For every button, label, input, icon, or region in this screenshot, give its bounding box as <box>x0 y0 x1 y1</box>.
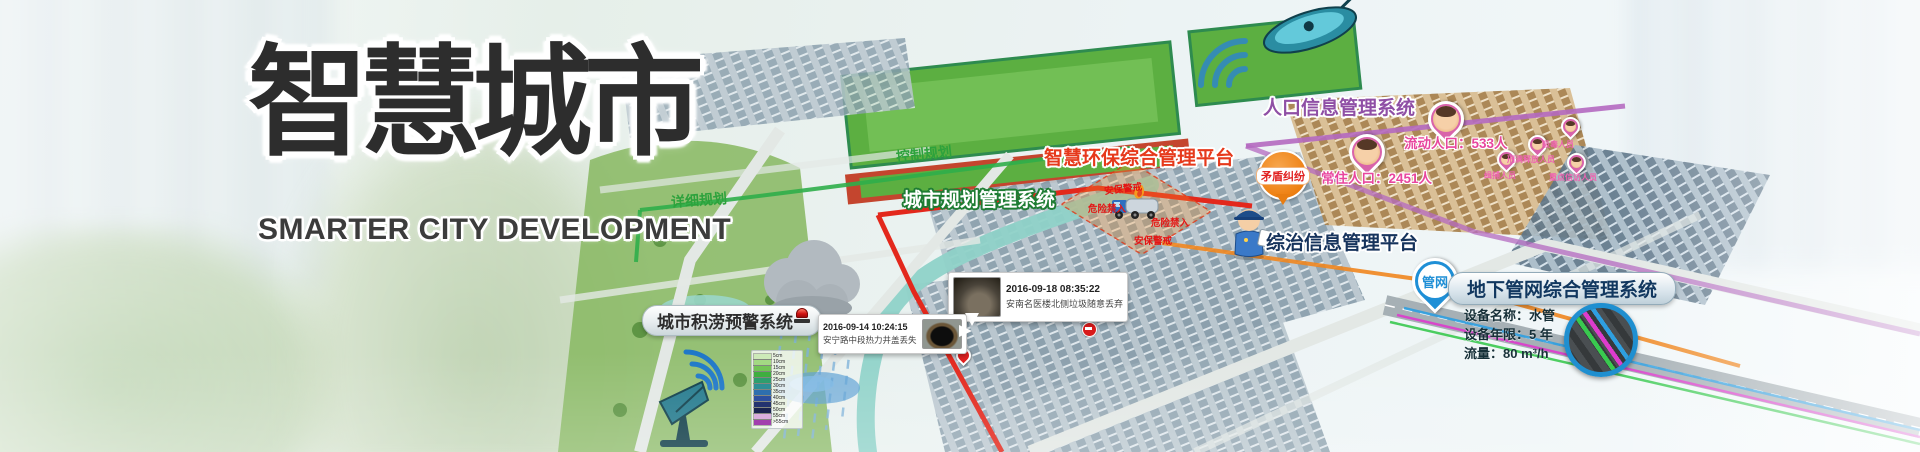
pipeline-magnifier <box>1564 303 1638 377</box>
legend-swatch <box>754 396 771 401</box>
alarm-siren-icon <box>794 308 810 323</box>
hazard-cordon-bottom-label: 安保警戒 <box>1134 233 1172 247</box>
legend-swatch <box>754 372 771 377</box>
pipeline-equipment-name: 设备名称：水管 <box>1464 305 1555 324</box>
legend-swatch <box>754 408 771 413</box>
label-population-system[interactable]: 人口信息管理系统 <box>1263 93 1415 120</box>
legend-swatch <box>754 378 771 383</box>
special-group-label: 吸毒人员 <box>1542 139 1574 150</box>
legend-swatch <box>754 366 771 371</box>
floating-population-count: 流动人口：533人 <box>1404 132 1508 152</box>
legend-row: >55cm <box>754 420 800 425</box>
label-environment-platform[interactable]: 智慧环保综合管理平台 <box>1044 143 1234 170</box>
smart-city-banner: 智慧城市 SMARTER CITY DEVELOPMENT 详细规划 控制规划 … <box>0 0 1920 452</box>
flood-depth-legend: 5cm 10cm 15cm 20cm 25cm 30cm 35cm 40cm 4… <box>751 350 803 429</box>
no-entry-sign-icon <box>1082 322 1097 337</box>
incident-desc: 安南名医楼北侧垃圾随意丢弃 <box>1006 297 1123 310</box>
label-governance-platform[interactable]: 综治信息管理平台 <box>1266 228 1418 255</box>
incident-desc: 安宁路中段热力井盖丢失 <box>823 334 917 346</box>
incident-time: 2016-09-14 10:24:15 <box>823 322 917 332</box>
special-group-label: 刑满释放人员 <box>1507 154 1555 165</box>
dispute-label: 矛盾纠纷 <box>1256 167 1310 185</box>
incident-time: 2016-09-18 08:35:22 <box>1006 284 1123 295</box>
incident-callout: 2016-09-14 10:24:15 安宁路中段热力井盖丢失 <box>818 314 967 354</box>
legend-swatch <box>754 414 771 419</box>
special-group-label: 缉捕人员 <box>1484 170 1516 181</box>
legend-swatch <box>754 402 771 407</box>
pipeline-equipment-age: 设备年限：5 年 <box>1464 324 1553 343</box>
pipeline-flow-rate: 流量：80 m³/h <box>1464 343 1549 362</box>
resident-population-count: 常住人口：2451人 <box>1321 167 1432 187</box>
incident-callout: 2016-09-18 08:35:22 安南名医楼北侧垃圾随意丢弃 <box>948 272 1128 322</box>
legend-swatch <box>754 420 771 425</box>
hazard-no-entry-left-label: 危险禁入 <box>1088 201 1126 215</box>
special-group-label: 重点信访人员 <box>1549 172 1597 183</box>
legend-swatch <box>754 360 771 365</box>
pipeline-pin-badge: 管网 <box>1418 264 1452 298</box>
legend-swatch <box>754 354 771 359</box>
detailed-planning-zone-label: 详细规划 <box>670 188 727 212</box>
incident-photo-garbage <box>953 277 1001 317</box>
page-title: 智慧城市 <box>248 40 696 166</box>
page-subtitle: SMARTER CITY DEVELOPMENT <box>258 213 731 247</box>
legend-swatch <box>754 390 771 395</box>
legend-swatch <box>754 384 771 389</box>
label-planning-system[interactable]: 城市规划管理系统 <box>903 185 1055 212</box>
hazard-no-entry-right-label: 危险禁入 <box>1151 215 1189 229</box>
incident-photo-manhole <box>922 319 962 349</box>
label-pipeline-system[interactable]: 地下管网综合管理系统 <box>1448 272 1676 305</box>
